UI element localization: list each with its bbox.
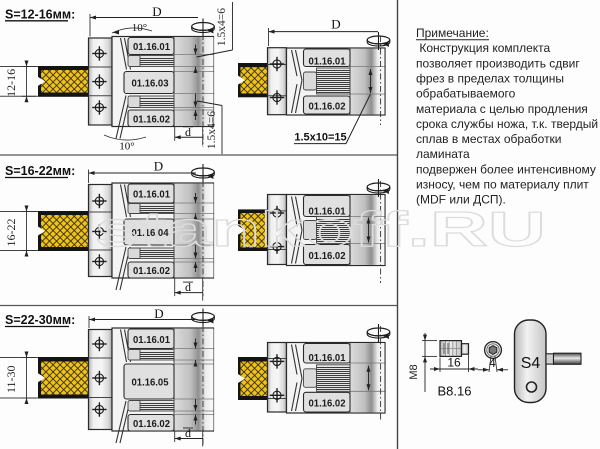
svg-text:D: D — [331, 17, 340, 32]
svg-text:01.16.03: 01.16.03 — [132, 79, 169, 90]
svg-text:01.16.02: 01.16.02 — [309, 102, 346, 113]
svg-text:01.16.02: 01.16.02 — [133, 266, 170, 277]
svg-text:01.16.01: 01.16.01 — [309, 353, 346, 364]
svg-text:Конструкция комплекта: Конструкция комплекта — [416, 41, 551, 55]
svg-text:01.16.01: 01.16.01 — [309, 57, 346, 68]
svg-text:износу, чем по материалу плит: износу, чем по материалу плит — [416, 177, 589, 191]
svg-text:stankoff.RU: stankoff.RU — [95, 203, 546, 257]
svg-text:сплав в местах обработки: сплав в местах обработки — [416, 132, 562, 146]
svg-text:обрабатываемого: обрабатываемого — [416, 87, 516, 101]
svg-text:Примечание:: Примечание: — [416, 26, 489, 40]
svg-text:01.16.02: 01.16.02 — [309, 399, 346, 410]
svg-text:16-22: 16-22 — [4, 219, 18, 247]
svg-text:16: 16 — [447, 356, 461, 370]
svg-text:12-16: 12-16 — [4, 69, 18, 97]
svg-text:1.5x4=6: 1.5x4=6 — [206, 111, 218, 149]
svg-text:B8.16: B8.16 — [438, 384, 472, 399]
svg-text:01.16.05: 01.16.05 — [132, 378, 169, 389]
svg-text:S=12-16мм:: S=12-16мм: — [5, 8, 75, 22]
svg-text:материала с целью продления: материала с целью продления — [416, 102, 588, 116]
svg-text:01.16.02: 01.16.02 — [133, 114, 170, 125]
svg-text:01.16.02: 01.16.02 — [133, 419, 170, 430]
svg-text:D: D — [154, 306, 163, 321]
svg-text:01.16.01: 01.16.01 — [133, 190, 170, 201]
svg-text:4: 4 — [489, 356, 496, 370]
svg-text:D: D — [154, 159, 163, 174]
svg-text:01.16.01: 01.16.01 — [133, 42, 170, 53]
svg-text:ламината: ламината — [416, 147, 470, 161]
svg-text:11-30: 11-30 — [4, 365, 18, 393]
svg-text:1.5x10=15: 1.5x10=15 — [294, 132, 346, 144]
svg-text:D: D — [152, 4, 161, 19]
svg-text:S4: S4 — [521, 355, 541, 372]
svg-text:10°: 10° — [119, 141, 134, 153]
svg-text:срока службы ножа, т.к. тверды: срока службы ножа, т.к. твердый — [416, 117, 598, 131]
svg-text:подвержен более интенсивному: подвержен более интенсивному — [416, 162, 596, 176]
svg-text:01.16.01: 01.16.01 — [133, 335, 170, 346]
svg-text:позволяет производить сдвиг: позволяет производить сдвиг — [416, 56, 580, 70]
svg-text:S=16-22мм:: S=16-22мм: — [5, 164, 75, 178]
svg-text:S=22-30мм:: S=22-30мм: — [5, 313, 75, 327]
svg-text:1.5x4=6: 1.5x4=6 — [216, 8, 228, 46]
svg-text:фрез в пределах толщины: фрез в пределах толщины — [416, 71, 564, 85]
svg-text:M8: M8 — [408, 364, 420, 379]
